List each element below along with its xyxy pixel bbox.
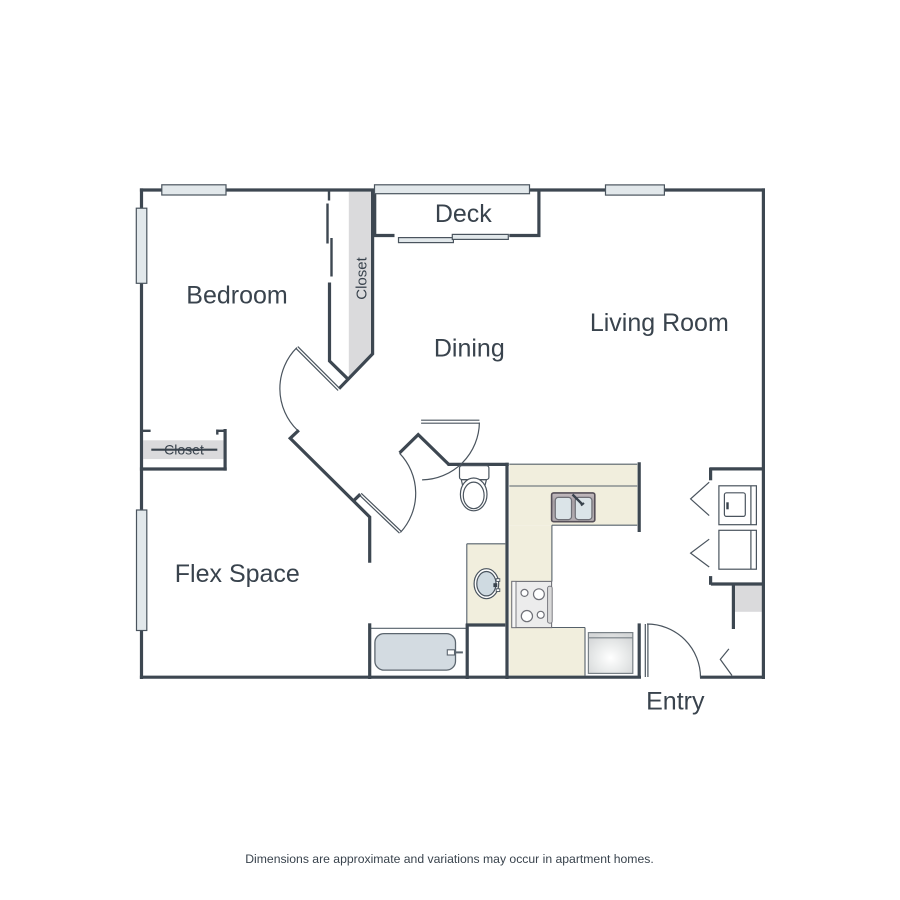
- svg-text:Bedroom: Bedroom: [186, 281, 287, 309]
- svg-text:Entry: Entry: [646, 688, 705, 716]
- svg-text:Deck: Deck: [435, 200, 492, 228]
- svg-text:Living Room: Living Room: [590, 309, 729, 337]
- svg-text:Dimensions are approximate and: Dimensions are approximate and variation…: [245, 852, 653, 866]
- svg-text:Flex Space: Flex Space: [175, 560, 300, 588]
- svg-text:Closet: Closet: [164, 442, 204, 458]
- svg-text:Dining: Dining: [434, 335, 505, 363]
- svg-text:Closet: Closet: [354, 256, 371, 299]
